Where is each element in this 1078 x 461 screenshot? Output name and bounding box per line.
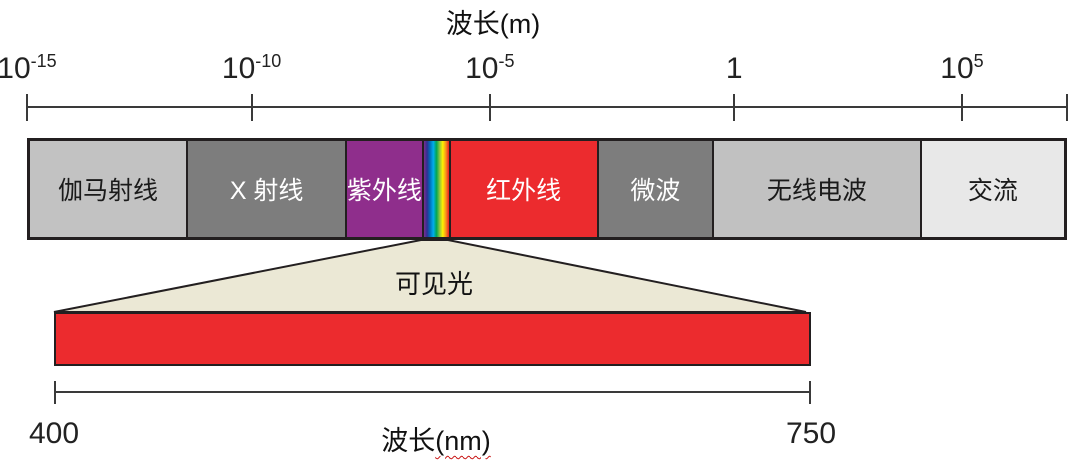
spectrum-bar: 伽马射线 X 射线 紫外线 红外线 微波 无线电波 交流 (27, 138, 1067, 240)
bottom-axis-tick (54, 381, 56, 404)
em-spectrum-diagram: 波长(m) 10-15 10-10 10-5 1 105 伽马射线 X 射线 紫… (0, 0, 1078, 461)
top-axis-labels: 10-15 10-10 10-5 1 105 (27, 50, 1067, 88)
segment-label: 无线电波 (767, 171, 867, 207)
top-axis-tick (251, 94, 253, 121)
wavelength-nm-title: 波长(nm) (381, 419, 491, 458)
top-axis-tick (1066, 94, 1068, 121)
nm-title-unit: (nm) (435, 426, 491, 456)
top-axis-tick (961, 94, 963, 121)
tick-label-400: 400 (29, 417, 79, 451)
segment-label: 交流 (968, 171, 1018, 207)
tick-label-1e5: 105 (940, 52, 983, 86)
segment-x-rays: X 射线 (186, 141, 345, 237)
top-axis-tick (26, 94, 28, 121)
nm-title-prefix: 波长 (381, 426, 435, 456)
segment-radio-waves: 无线电波 (712, 141, 920, 237)
segment-alternating-current: 交流 (920, 141, 1064, 237)
segment-label: 红外线 (486, 171, 561, 207)
visible-light-bar (54, 312, 811, 366)
visible-light-strip (422, 141, 449, 237)
tick-label-1e-10: 10-10 (222, 52, 281, 86)
bottom-axis-line (54, 391, 811, 393)
bottom-axis-tick (809, 381, 811, 404)
tick-label-1e-5: 10-5 (465, 52, 514, 86)
segment-label: 微波 (630, 171, 680, 207)
top-axis-tick (489, 94, 491, 121)
segment-ultraviolet: 紫外线 (345, 141, 422, 237)
tick-label-1: 1 (726, 52, 743, 86)
visible-light-label: 可见光 (395, 264, 473, 301)
segment-label: 伽马射线 (58, 171, 158, 207)
wavelength-m-title: 波长(m) (390, 2, 596, 41)
segment-gamma-rays: 伽马射线 (30, 141, 186, 237)
tick-label-750: 750 (786, 417, 836, 451)
segment-infrared: 红外线 (449, 141, 597, 237)
visible-light-funnel (0, 239, 1078, 313)
bottom-axis (54, 381, 811, 404)
top-axis-tick (733, 94, 735, 121)
segment-label: 紫外线 (347, 171, 422, 207)
top-axis-line (27, 106, 1067, 108)
top-axis (27, 94, 1067, 122)
tick-label-1e-15: 10-15 (0, 52, 57, 86)
segment-microwave: 微波 (597, 141, 712, 237)
segment-label: X 射线 (230, 171, 304, 207)
